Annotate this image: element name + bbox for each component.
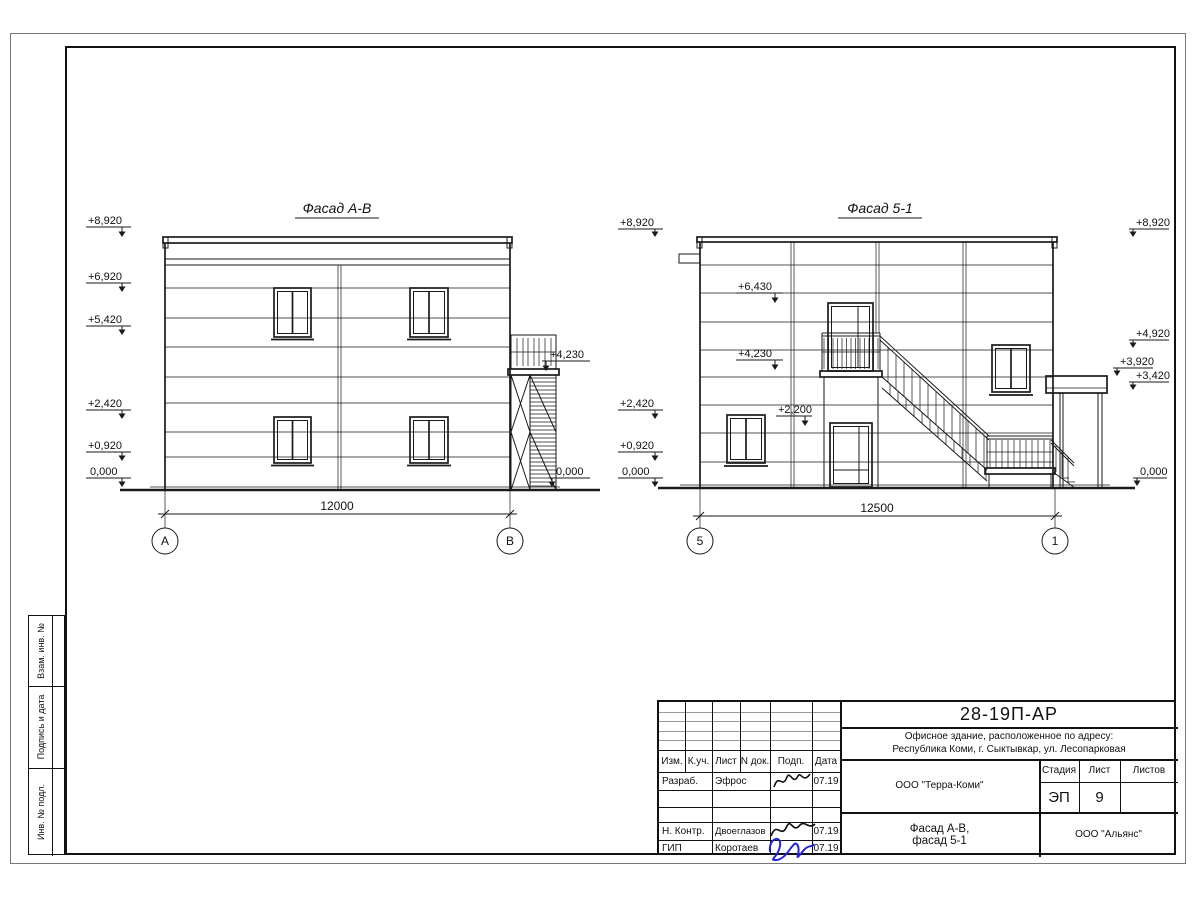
title-block: Изм. К.уч. Лист N док. Подп. Дата Разраб… <box>657 700 1176 855</box>
dimension-label: 12000 <box>320 499 354 513</box>
elevation-mark-label: 0,000 <box>1140 466 1168 478</box>
project-description: Офисное здание, расположенное по адресу:… <box>840 727 1178 759</box>
window <box>989 345 1033 395</box>
side-attribute-column: Взам. инв. № Подпись и дата Инв. № подл. <box>28 615 65 855</box>
row-role: Н. Контр. <box>659 822 712 840</box>
external-stair <box>880 336 1075 488</box>
entrance-door <box>830 423 872 487</box>
window <box>271 288 314 340</box>
elevation-mark-label: 0,000 <box>90 466 118 478</box>
elevation-mark-label: 0,000 <box>622 466 650 478</box>
facade-ab-drawing: Фасад А-В +8,920 +6,920 +5,420 +2,420 +0… <box>70 190 610 560</box>
elevation-mark-label: +3,920 <box>1120 356 1154 368</box>
stage-label: Стадия <box>1039 759 1079 782</box>
window <box>724 415 768 466</box>
elevation-mark-label: +8,920 <box>88 215 122 227</box>
col-data: Дата <box>812 750 840 772</box>
facade-51-title: Фасад 5-1 <box>847 200 913 216</box>
contractor-org: ООО "Альянс" <box>1039 812 1178 857</box>
stage-value: ЭП <box>1039 782 1079 812</box>
project-description-line2: Республика Коми, г. Сыктывкар, ул. Лесоп… <box>892 743 1125 756</box>
document-code: 28-19П-АР <box>840 702 1178 727</box>
elevation-mark-label: +8,920 <box>1136 217 1170 229</box>
side-label-inv: Инв. № подл. <box>29 772 53 852</box>
elevation-mark-label: +0,920 <box>88 440 122 452</box>
signature-razrab <box>771 768 813 794</box>
window <box>407 288 451 340</box>
facade-51-drawing: Фасад 5-1 +8,920 +2,420 +0,920 0,000 +6,… <box>615 190 1180 560</box>
elevation-mark-label: 0,000 <box>556 466 584 478</box>
drawing-sheet: Фасад А-В +8,920 +6,920 +5,420 +2,420 +0… <box>0 0 1200 900</box>
sheet-label: Лист <box>1079 759 1120 782</box>
elevation-mark-label: +3,420 <box>1136 370 1170 382</box>
elevation-mark-label: +4,230 <box>738 348 772 360</box>
row-date: 07.19 <box>812 772 840 790</box>
sheets-label: Листов <box>1120 759 1178 782</box>
row-role: ГИП <box>659 840 712 857</box>
balcony-door <box>828 303 873 371</box>
row-role: Разраб. <box>659 772 712 790</box>
axis-bubble-label: 1 <box>1052 534 1059 548</box>
axis-bubble-label: В <box>506 534 514 548</box>
side-label-podpis: Подпись и дата <box>29 687 53 767</box>
side-label-vzam: Взам. инв. № <box>29 611 53 691</box>
elevation-mark-label: +4,920 <box>1136 328 1170 340</box>
sheet-title-line2: фасад 5-1 <box>912 835 967 847</box>
window <box>271 417 314 466</box>
elevation-mark-label: +8,920 <box>620 217 654 229</box>
axis-bubble-label: 5 <box>697 534 704 548</box>
elevation-mark-label: +2,200 <box>778 404 812 416</box>
sheets-total <box>1120 782 1178 812</box>
signature-gip <box>764 826 816 866</box>
elevation-mark-label: +2,420 <box>620 398 654 410</box>
dimension-label: 12500 <box>860 501 894 515</box>
row-name: Эфрос <box>712 772 770 790</box>
elevation-mark-label: +5,420 <box>88 314 122 326</box>
row-name: Коротаев <box>712 840 770 857</box>
elevation-mark-label: +0,920 <box>620 440 654 452</box>
sheet-title-line1: Фасад А-В, <box>910 823 970 835</box>
elevation-mark-label: +6,430 <box>738 281 772 293</box>
design-org: ООО "Терра-Коми" <box>840 759 1039 812</box>
col-kuch: К.уч. <box>685 750 712 772</box>
sheet-title: Фасад А-В, фасад 5-1 <box>840 812 1039 857</box>
window <box>407 417 451 466</box>
elevation-mark-label: +6,920 <box>88 271 122 283</box>
elevation-mark-label: +2,420 <box>88 398 122 410</box>
facade-ab-title: Фасад А-В <box>303 200 372 216</box>
project-description-line1: Офисное здание, расположенное по адресу: <box>905 730 1114 743</box>
col-izm: Изм. <box>659 750 685 772</box>
col-ndok: N док. <box>740 750 770 772</box>
col-list: Лист <box>712 750 740 772</box>
sheet-number: 9 <box>1079 782 1120 812</box>
axis-bubble-label: А <box>161 534 169 548</box>
elevation-mark-label: +4,230 <box>550 349 584 361</box>
row-name: Двоеглазов <box>712 822 770 840</box>
